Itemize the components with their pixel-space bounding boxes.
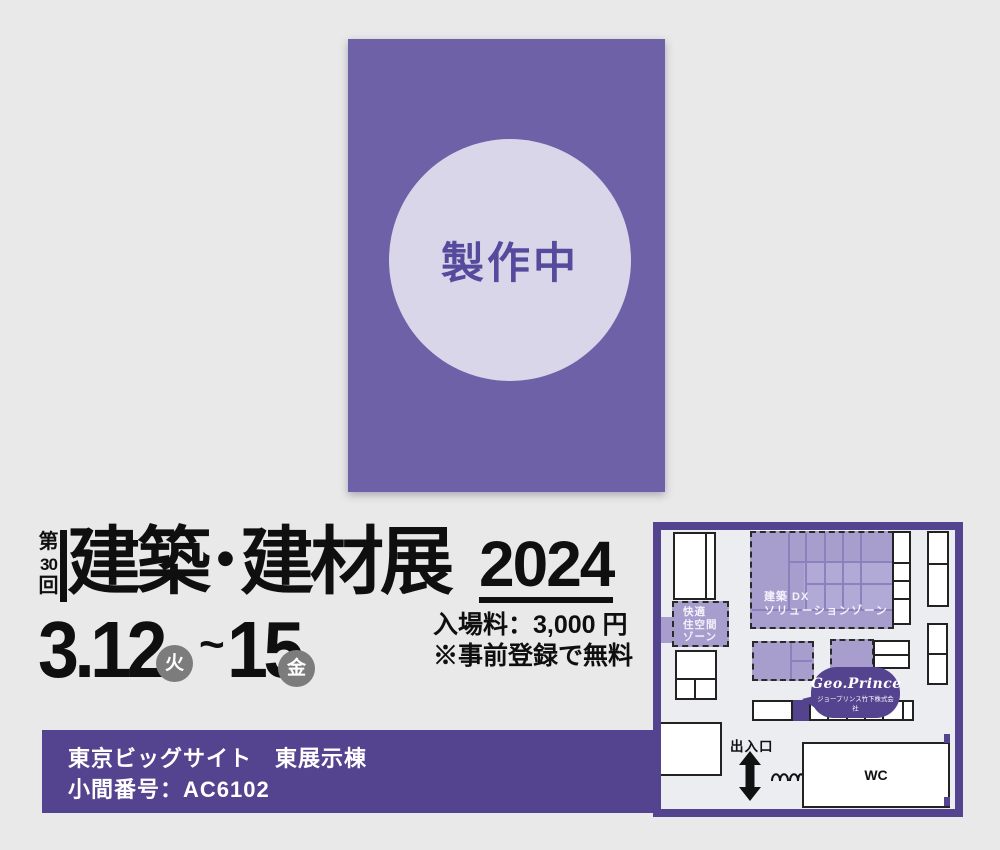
- room-rect: [661, 722, 722, 776]
- booth-rect: [673, 532, 716, 600]
- booth-rect: [927, 623, 948, 685]
- exhibition-title: 建築･建材展: [67, 521, 450, 603]
- zone-comfort-living: 快適 住空間 ゾーン: [672, 601, 729, 647]
- zone-comfort-extension: [661, 617, 672, 643]
- exhibition-year: 2024: [479, 532, 613, 603]
- booth-rect: [927, 531, 949, 607]
- floor-map: 快適 住空間 ゾーン: [653, 522, 963, 817]
- zone-dx-solution: 建築 DX ソリューションゾーン: [750, 531, 894, 629]
- poster-placeholder: 製作中: [348, 39, 665, 492]
- date-range-separator: ~: [199, 620, 225, 670]
- weekday-badge-friday: 金: [278, 650, 315, 687]
- exhibitor-callout-bubble: Geo.Prince ジョープリンス竹下株式会社: [811, 667, 900, 718]
- wc-label: WC: [864, 767, 887, 783]
- venue-booth-number: 小間番号：AC6102: [68, 774, 662, 805]
- edition-block: 第 30 回: [37, 531, 60, 598]
- start-date: 3.12: [38, 610, 163, 690]
- poster-status-text: 製作中: [441, 229, 579, 291]
- edition-prefix: 第: [37, 531, 60, 554]
- title-divider-bar: [60, 530, 67, 602]
- door-swing-icon: [770, 768, 806, 782]
- edition-number: 30: [37, 554, 60, 575]
- map-notch: [944, 734, 950, 743]
- zone-comfort-label: 快適: [683, 606, 727, 619]
- map-notch: [944, 797, 950, 806]
- floor-map-inner: 快適 住空間 ゾーン: [661, 530, 955, 809]
- entrance-arrow-icon: [739, 751, 761, 801]
- venue-place: 東京ビッグサイト 東展示棟: [68, 743, 662, 774]
- flyer-page: 製作中 第 30 回 建築･建材展 2024 3.12 火 ~ 15 金 入場料…: [0, 0, 1000, 850]
- zone-comfort-label: ゾーン: [683, 631, 727, 644]
- weekday-badge-tuesday: 火: [156, 645, 193, 682]
- booth-rect: [892, 531, 911, 625]
- venue-bar: 東京ビッグサイト 東展示棟 小間番号：AC6102: [42, 730, 662, 813]
- edition-suffix: 回: [37, 575, 60, 598]
- admission-info: 入場料：3,000 円 ※事前登録で無料: [433, 610, 633, 672]
- booth-rect: [675, 650, 717, 700]
- zone-dx-subblock: [752, 641, 814, 681]
- poster-circle: 製作中: [389, 139, 631, 381]
- booth-rect: [873, 640, 910, 669]
- zone-comfort-label: 住空間: [683, 619, 727, 632]
- admission-fee: 入場料：3,000 円: [433, 610, 633, 641]
- wc-room: WC: [802, 742, 950, 808]
- exhibitor-logo: Geo.Prince: [811, 676, 900, 692]
- admission-note: ※事前登録で無料: [433, 641, 633, 672]
- zone-dx-label: 建築 DX ソリューションゾーン: [764, 591, 888, 618]
- exhibitor-company-name: ジョープリンス竹下株式会社: [815, 695, 897, 713]
